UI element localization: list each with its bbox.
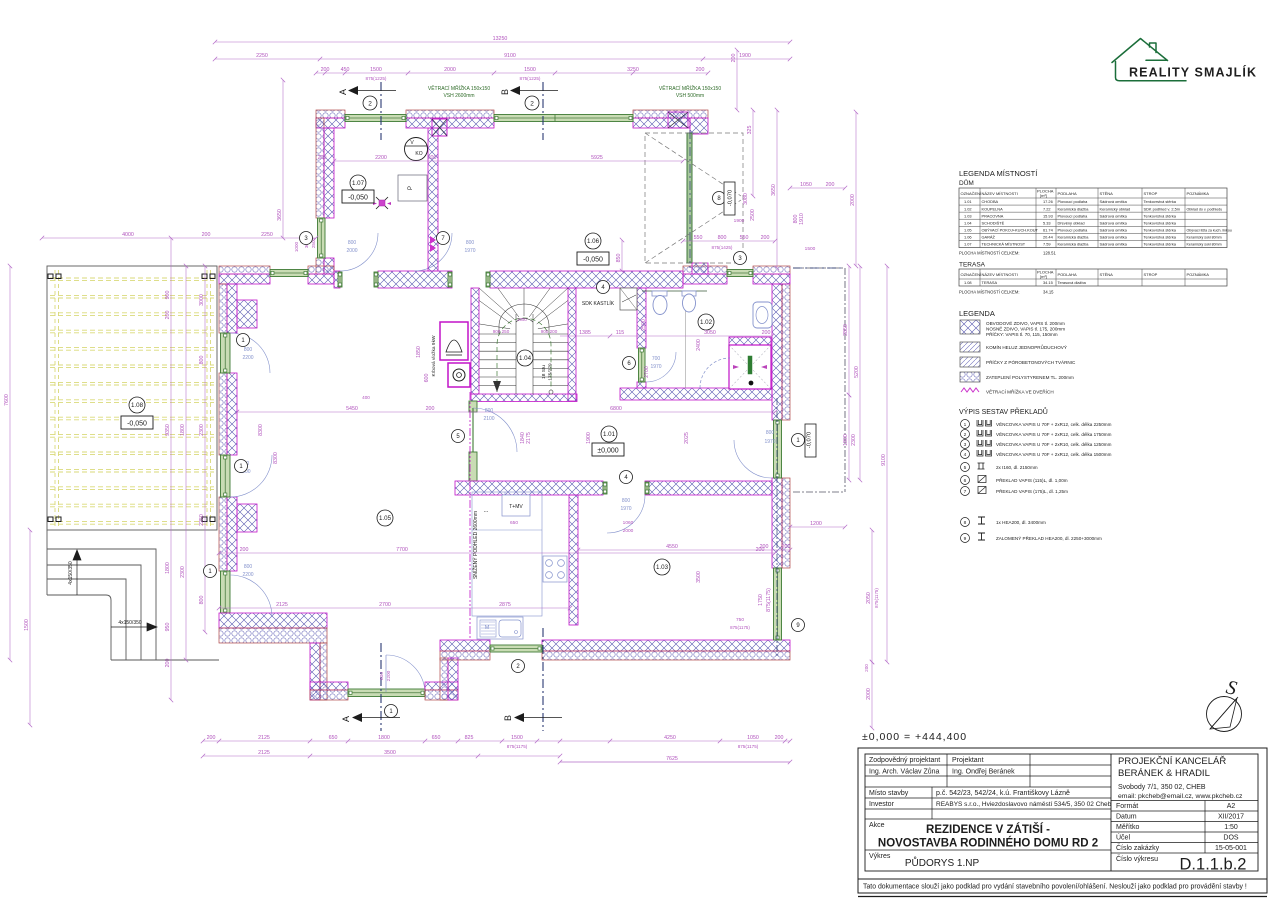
svg-text:2200: 2200 — [375, 155, 387, 161]
svg-text:2: 2 — [368, 100, 372, 107]
svg-text:PLOCHA MÍSTNOSTÍ CELKEM:: PLOCHA MÍSTNOSTÍ CELKEM: — [959, 290, 1020, 295]
svg-text:7625: 7625 — [666, 756, 678, 762]
svg-text:D.1.1.b.2: D.1.1.b.2 — [1180, 856, 1247, 874]
svg-text:7: 7 — [964, 489, 967, 495]
svg-text:Keramický obklad: Keramický obklad — [1100, 206, 1131, 211]
svg-text:2250: 2250 — [199, 514, 205, 526]
svg-text:2250: 2250 — [256, 53, 268, 59]
svg-text:TERASA: TERASA — [959, 262, 986, 269]
svg-text:3650: 3650 — [277, 209, 283, 221]
svg-text:9100: 9100 — [504, 53, 516, 59]
svg-text:3500: 3500 — [384, 750, 396, 756]
svg-text:1500: 1500 — [24, 619, 30, 631]
svg-text:3650: 3650 — [771, 184, 777, 196]
svg-text:200: 200 — [165, 311, 171, 320]
svg-text:1.07: 1.07 — [964, 242, 972, 247]
svg-text:9350: 9350 — [165, 424, 171, 436]
svg-text:200: 200 — [318, 155, 327, 161]
svg-text:20.44: 20.44 — [1043, 235, 1054, 240]
svg-text:Číslo zakázky: Číslo zakázky — [1116, 843, 1160, 852]
svg-text:REZIDENCE V ZÁTIŠÍ -: REZIDENCE V ZÁTIŠÍ - — [926, 823, 1050, 836]
svg-text:1970: 1970 — [464, 248, 475, 254]
svg-text:-0,050: -0,050 — [583, 257, 603, 264]
svg-text:Obklad do v. podhledu: Obklad do v. podhledu — [1187, 207, 1223, 211]
svg-text:800: 800 — [718, 235, 727, 241]
svg-text:200: 200 — [775, 735, 784, 741]
svg-text:200: 200 — [760, 544, 769, 550]
svg-text:4250: 4250 — [664, 735, 676, 741]
svg-text:2000: 2000 — [623, 528, 634, 534]
svg-text:875(1225): 875(1225) — [366, 76, 387, 81]
svg-text:2: 2 — [530, 100, 534, 107]
svg-text:1500: 1500 — [370, 67, 382, 73]
svg-text:1850: 1850 — [416, 346, 422, 358]
svg-text:1.05: 1.05 — [379, 515, 392, 522]
svg-text:-0,070: -0,070 — [807, 432, 813, 448]
svg-text:1800: 1800 — [165, 562, 171, 574]
svg-text:34.15: 34.15 — [1043, 290, 1054, 295]
svg-text:1970: 1970 — [620, 506, 631, 512]
svg-text:650: 650 — [432, 735, 441, 741]
svg-text:2400: 2400 — [696, 339, 702, 351]
svg-text:Keramická dlažba: Keramická dlažba — [1058, 206, 1090, 211]
svg-text:2x I160, dl. 2150mm: 2x I160, dl. 2150mm — [996, 465, 1038, 470]
svg-text:200: 200 — [202, 232, 211, 238]
svg-text:Plovoucí podlaha: Plovoucí podlaha — [1058, 199, 1089, 204]
svg-text:2700: 2700 — [379, 602, 391, 608]
svg-text:P: P — [408, 186, 414, 190]
svg-text:900 200: 900 200 — [541, 329, 558, 334]
svg-text:±0,000: ±0,000 — [597, 448, 618, 455]
svg-text:NÁZEV MÍSTNOSTI: NÁZEV MÍSTNOSTI — [982, 191, 1018, 196]
svg-text:ZALOMENÝ PŘEKLAD HEA200, dl: ZALOMENÝ PŘEKLAD HEA200, dl. 2250+3000mm — [996, 534, 1102, 541]
svg-text:800: 800 — [348, 240, 357, 246]
svg-text:Projektant: Projektant — [952, 757, 984, 764]
svg-text:A2: A2 — [1227, 803, 1236, 810]
svg-text:4550: 4550 — [666, 544, 678, 550]
svg-text:KOUPELNA: KOUPELNA — [982, 206, 1004, 211]
svg-text:STĚNA: STĚNA — [1100, 191, 1114, 196]
svg-text:Datum: Datum — [1116, 814, 1137, 821]
svg-text:34.15: 34.15 — [1043, 280, 1053, 285]
svg-text:1.08: 1.08 — [131, 402, 144, 409]
svg-text:OBÝVACÍ POKOJ+KUCH.KOUT: OBÝVACÍ POKOJ+KUCH.KOUT — [982, 227, 1039, 232]
svg-text:[m²]: [m²] — [1040, 193, 1047, 198]
svg-text:200: 200 — [762, 330, 771, 336]
svg-text:NÁZEV MÍSTNOSTI: NÁZEV MÍSTNOSTI — [982, 272, 1018, 277]
svg-text:2700: 2700 — [644, 366, 650, 378]
svg-text:2000: 2000 — [346, 248, 357, 254]
svg-text:SCHODIŠTĚ: SCHODIŠTĚ — [982, 220, 1005, 225]
svg-text:-0,050: -0,050 — [348, 195, 368, 202]
svg-text:900: 900 — [165, 291, 171, 300]
svg-text:1500: 1500 — [805, 246, 816, 252]
svg-text:VĚTRACÍ MŘÍŽKA 150x150: VĚTRACÍ MŘÍŽKA 150x150 — [659, 84, 721, 92]
svg-text:1900: 1900 — [734, 218, 745, 224]
svg-text:Sádrová omítka: Sádrová omítka — [1100, 227, 1128, 232]
svg-text:Plovoucí podlaha: Plovoucí podlaha — [1058, 227, 1089, 232]
svg-text:200: 200 — [761, 235, 770, 241]
svg-text:5.33: 5.33 — [1043, 220, 1051, 225]
svg-text:M: M — [485, 625, 490, 631]
svg-text:LEGENDA MÍSTNOSTÍ: LEGENDA MÍSTNOSTÍ — [959, 169, 1038, 178]
svg-text:VSH 500mm: VSH 500mm — [676, 93, 704, 99]
svg-text:1800: 1800 — [843, 434, 849, 446]
svg-text:VSH 2600mm: VSH 2600mm — [443, 93, 474, 99]
svg-text:18 Stu: 18 Stu — [541, 365, 547, 379]
svg-text:1050: 1050 — [517, 317, 527, 322]
svg-text:PŘEKLAD VAPIS (175)L, dl.: PŘEKLAD VAPIS (175)L, dl. 1,25m — [996, 487, 1068, 494]
svg-text:VĚNCOVKA VAPIS U 70F + 2x: VĚNCOVKA VAPIS U 70F + 2xR10, celk. délk… — [996, 440, 1112, 447]
svg-text:Ing. Ondřej Beránek: Ing. Ondřej Beránek — [952, 769, 1015, 776]
svg-text:Investor: Investor — [869, 801, 895, 808]
svg-text:VĚTRACÍ MŘÍŽKA 150x150: VĚTRACÍ MŘÍŽKA 150x150 — [428, 84, 490, 92]
svg-text:2500: 2500 — [641, 319, 647, 331]
svg-text:8300: 8300 — [273, 452, 279, 464]
svg-text:DOS: DOS — [1223, 835, 1239, 842]
svg-text:200: 200 — [428, 155, 437, 161]
svg-text:PŘÍČKY Z PÓROBETONOVÝCH TVÁ: PŘÍČKY Z PÓROBETONOVÝCH TVÁRNIC — [986, 358, 1076, 365]
svg-text:1.02: 1.02 — [700, 319, 713, 326]
svg-text:8: 8 — [964, 520, 967, 526]
svg-text:email: pkcheb@email.cz, www.pk: email: pkcheb@email.cz, www.pkcheb.cz — [1118, 793, 1243, 800]
svg-text:115: 115 — [616, 330, 624, 336]
svg-text:Tenkovrstvá stěrka: Tenkovrstvá stěrka — [1144, 227, 1177, 232]
svg-text:200: 200 — [240, 547, 249, 553]
svg-text:2875: 2875 — [499, 602, 511, 608]
svg-text:PRACOVNA: PRACOVNA — [982, 213, 1004, 218]
svg-text:1050: 1050 — [800, 182, 812, 188]
svg-text:2200: 2200 — [242, 572, 253, 578]
svg-text:800: 800 — [622, 498, 631, 504]
svg-text:1900: 1900 — [739, 53, 751, 59]
svg-text:875(1225): 875(1225) — [520, 76, 541, 81]
svg-text:1840: 1840 — [520, 432, 526, 444]
svg-text:1900: 1900 — [586, 432, 592, 444]
svg-text:850: 850 — [616, 254, 622, 263]
svg-text:2850: 2850 — [843, 324, 849, 336]
svg-text:875(1175): 875(1175) — [874, 588, 879, 608]
svg-text:POZNÁMKA: POZNÁMKA — [1187, 191, 1210, 196]
svg-text:1800: 1800 — [378, 735, 390, 741]
svg-text:800: 800 — [466, 240, 475, 246]
svg-text:TECHNICKÁ MÍSTNOST: TECHNICKÁ MÍSTNOST — [982, 242, 1026, 247]
svg-text:875(1175): 875(1175) — [507, 744, 528, 749]
svg-text:1.03: 1.03 — [964, 213, 972, 218]
svg-text:2000: 2000 — [866, 688, 872, 700]
svg-text:Keramický sokl 80mm: Keramický sokl 80mm — [1187, 236, 1222, 240]
svg-text:2025: 2025 — [684, 432, 690, 444]
svg-text:800: 800 — [766, 430, 775, 436]
svg-text:...: ... — [483, 508, 488, 514]
svg-text:825: 825 — [465, 735, 474, 741]
svg-text:VĚTRACÍ MŘÍŽKA VE DVEŘÍCH: VĚTRACÍ MŘÍŽKA VE DVEŘÍCH — [986, 388, 1054, 395]
svg-text:550: 550 — [740, 235, 749, 241]
svg-text:Keramická dlažba: Keramická dlažba — [1058, 235, 1090, 240]
svg-text:1060: 1060 — [623, 520, 634, 526]
svg-text:950: 950 — [165, 623, 171, 632]
svg-text:TERASA: TERASA — [982, 280, 998, 285]
svg-text:2250: 2250 — [261, 232, 273, 238]
svg-text:13250: 13250 — [493, 36, 508, 42]
svg-text:LEGENDA: LEGENDA — [959, 309, 995, 318]
svg-text:REALITY SMAJLÍK: REALITY SMAJLÍK — [1129, 65, 1257, 80]
svg-text:750: 750 — [736, 617, 744, 623]
svg-text:2000: 2000 — [444, 67, 456, 73]
svg-text:61.74: 61.74 — [1043, 227, 1054, 232]
svg-text:STROP: STROP — [1144, 191, 1158, 196]
svg-text:VĚNCOVKA VAPIS U 70F + 2x: VĚNCOVKA VAPIS U 70F + 2xR12, celk. délk… — [996, 430, 1112, 437]
svg-text:Místo stavby: Místo stavby — [869, 790, 909, 797]
svg-text:650: 650 — [329, 735, 338, 741]
svg-text:800: 800 — [244, 564, 253, 570]
svg-text:Tenkovrstvá stěrka: Tenkovrstvá stěrka — [1144, 242, 1177, 247]
svg-text:Výkres: Výkres — [869, 853, 891, 860]
svg-text:p.č. 542/23, 542/24, k.ú. Fran: p.č. 542/23, 542/24, k.ú. Františkovy Lá… — [936, 790, 1070, 797]
svg-text:1.07: 1.07 — [352, 180, 365, 187]
svg-text:15-05-001: 15-05-001 — [1215, 845, 1247, 852]
svg-text:800: 800 — [379, 672, 385, 680]
svg-text:CHODBA: CHODBA — [982, 199, 999, 204]
svg-text:Měřítko: Měřítko — [1116, 824, 1139, 831]
svg-text:800: 800 — [244, 347, 253, 353]
svg-text:2: 2 — [964, 432, 967, 438]
svg-text:PLOCHA MÍSTNOSTÍ CELKEM:: PLOCHA MÍSTNOSTÍ CELKEM: — [959, 251, 1020, 256]
svg-text:GARÁŽ: GARÁŽ — [982, 235, 996, 240]
svg-text:875(1175): 875(1175) — [738, 744, 759, 749]
svg-text:2200: 2200 — [386, 670, 392, 681]
svg-text:1050: 1050 — [747, 735, 759, 741]
svg-text:Sádrová omítka: Sádrová omítka — [1100, 242, 1128, 247]
svg-text:PŘÍČKY: VAPIS tl. 70, 115,: PŘÍČKY: VAPIS tl. 70, 115, 150mm — [986, 330, 1058, 337]
svg-text:1x HEA200, dl. 3400mm: 1x HEA200, dl. 3400mm — [996, 520, 1046, 525]
svg-text:5200: 5200 — [854, 366, 860, 378]
svg-text:7700: 7700 — [396, 547, 408, 553]
svg-text:1800: 1800 — [180, 424, 186, 436]
svg-text:200: 200 — [165, 659, 171, 668]
svg-text:2125: 2125 — [258, 735, 270, 741]
svg-text:175/279: 175/279 — [548, 363, 554, 381]
svg-text:A: A — [338, 89, 348, 95]
svg-text:3080: 3080 — [743, 193, 749, 205]
svg-text:VÝPIS SESTAV PŘEKLADŮ: VÝPIS SESTAV PŘEKLADŮ — [959, 407, 1048, 416]
svg-text:1000: 1000 — [294, 241, 299, 252]
svg-text:2500: 2500 — [750, 209, 756, 221]
svg-text:550: 550 — [694, 235, 703, 241]
svg-text:Tenkovrstvá stěrka: Tenkovrstvá stěrka — [1144, 235, 1177, 240]
svg-text:NOSNÉ ZDIVO, VAPIS tl. 175: NOSNÉ ZDIVO, VAPIS tl. 175, 200mm — [986, 326, 1065, 332]
svg-text:1385: 1385 — [579, 330, 591, 336]
svg-text:Sádrová omítka: Sádrová omítka — [1100, 213, 1128, 218]
svg-text:1.08: 1.08 — [964, 280, 972, 285]
svg-text:KOMÍN HELUZ JEDNOPRŮDUCHOVÝ: KOMÍN HELUZ JEDNOPRŮDUCHOVÝ — [986, 344, 1067, 350]
svg-text:4x150/350: 4x150/350 — [118, 620, 142, 626]
svg-text:S: S — [1224, 676, 1239, 700]
svg-text:325: 325 — [747, 126, 753, 135]
svg-text:POZNÁMKA: POZNÁMKA — [1187, 272, 1210, 277]
svg-text:XII/2017: XII/2017 — [1218, 814, 1244, 821]
svg-text:128.51: 128.51 — [1043, 251, 1056, 256]
svg-text:875(1425): 875(1425) — [712, 245, 733, 250]
svg-text:5: 5 — [964, 465, 967, 471]
svg-text:3500: 3500 — [696, 571, 702, 583]
svg-text:450: 450 — [341, 67, 350, 73]
svg-text:Obývací lišta za kuch. linkou: Obývací lišta za kuch. linkou — [1187, 228, 1232, 232]
svg-text:1.05: 1.05 — [964, 227, 972, 232]
svg-text:3050: 3050 — [704, 330, 716, 336]
svg-text:875(1175): 875(1175) — [766, 588, 772, 612]
svg-text:1750: 1750 — [758, 594, 764, 606]
svg-text:200: 200 — [782, 544, 791, 550]
svg-text:4: 4 — [964, 452, 967, 458]
svg-text:2050: 2050 — [866, 592, 872, 604]
svg-text:B: B — [500, 89, 510, 95]
svg-text:17.26: 17.26 — [1043, 199, 1053, 204]
svg-text:600: 600 — [424, 374, 430, 383]
svg-text:2000: 2000 — [850, 194, 856, 206]
svg-text:650: 650 — [510, 520, 518, 526]
svg-text:2100: 2100 — [483, 416, 494, 422]
svg-text:Ing. Arch. Václav Zůna: Ing. Arch. Václav Zůna — [869, 768, 940, 776]
svg-text:2200: 2200 — [242, 355, 253, 361]
svg-text:VĚNCOVKA VAPIS U 70F + 2x: VĚNCOVKA VAPIS U 70F + 2xR12, celk. délk… — [996, 420, 1112, 427]
svg-text:SDK podhled v. 2,5m: SDK podhled v. 2,5m — [1144, 206, 1180, 211]
svg-text:Zodpovědný projektant: Zodpovědný projektant — [869, 757, 940, 764]
svg-text:200: 200 — [696, 67, 705, 73]
svg-text:Sádrová omítka: Sádrová omítka — [1100, 199, 1128, 204]
svg-text:3: 3 — [964, 442, 967, 448]
svg-text:Akce: Akce — [869, 822, 885, 829]
svg-text:6800: 6800 — [610, 406, 622, 412]
svg-text:7.59: 7.59 — [1043, 242, 1051, 247]
svg-text:SDK KASTLÍK: SDK KASTLÍK — [582, 300, 615, 307]
svg-text:2300: 2300 — [851, 434, 857, 446]
svg-text:T+MV: T+MV — [509, 504, 523, 510]
svg-text:1500: 1500 — [511, 735, 523, 741]
svg-text:2300: 2300 — [180, 566, 186, 578]
svg-text:Keramický sokl 80mm: Keramický sokl 80mm — [1187, 243, 1222, 247]
svg-text:7600: 7600 — [4, 394, 10, 406]
svg-text:1.03: 1.03 — [656, 564, 669, 571]
svg-text:OZNAČENÍ: OZNAČENÍ — [961, 191, 983, 196]
svg-text:200: 200 — [321, 67, 330, 73]
svg-text:Krbová vložka 9kW: Krbová vložka 9kW — [431, 335, 437, 377]
svg-text:3000: 3000 — [199, 294, 205, 306]
svg-text:[m²]: [m²] — [1040, 274, 1047, 279]
svg-text:800: 800 — [199, 356, 205, 365]
svg-text:4000: 4000 — [122, 232, 134, 238]
svg-text:200: 200 — [731, 54, 737, 63]
svg-text:Terasová dlažba: Terasová dlažba — [1058, 280, 1087, 285]
svg-text:Keramická dlažba: Keramická dlažba — [1058, 242, 1090, 247]
svg-text:ZATEPLENÍ POLYSTYRENEM TL.: ZATEPLENÍ POLYSTYRENEM TL. 200mm — [986, 374, 1074, 380]
svg-text:PŮDORYS 1.NP: PŮDORYS 1.NP — [905, 856, 980, 869]
svg-text:SNÍŽENÝ PODHLED 2600mm: SNÍŽENÝ PODHLED 2600mm — [471, 511, 479, 579]
svg-text:1970: 1970 — [764, 439, 775, 445]
svg-text:REABYS s.r.o., Hviezdoslavovo: REABYS s.r.o., Hviezdoslavovo náměstí 53… — [936, 801, 1112, 808]
svg-text:700: 700 — [652, 356, 661, 362]
svg-text:1.06: 1.06 — [587, 238, 600, 245]
svg-text:PŘEKLAD VAPIS (115)L, dl.: PŘEKLAD VAPIS (115)L, dl. 1,00m — [996, 476, 1068, 483]
svg-text:15.93: 15.93 — [1043, 213, 1053, 218]
svg-text:1200: 1200 — [810, 521, 822, 527]
svg-text:STĚNA: STĚNA — [1100, 272, 1114, 277]
svg-text:200: 200 — [207, 735, 216, 741]
svg-text:1970: 1970 — [650, 364, 661, 370]
svg-text:1:50: 1:50 — [1224, 824, 1238, 831]
svg-text:875(1175): 875(1175) — [730, 625, 750, 630]
svg-text:7.22: 7.22 — [1043, 206, 1051, 211]
svg-text:9100: 9100 — [881, 454, 887, 466]
svg-text:OBVODOVÉ ZDIVO, VAPIS tl.: OBVODOVÉ ZDIVO, VAPIS tl. 200mm — [986, 320, 1065, 326]
svg-text:PODLAHA: PODLAHA — [1058, 191, 1077, 196]
svg-text:±0,000 = +444,400: ±0,000 = +444,400 — [862, 731, 967, 743]
svg-text:1.01: 1.01 — [603, 431, 616, 438]
svg-text:200: 200 — [864, 664, 869, 672]
svg-text:200: 200 — [826, 182, 835, 188]
svg-text:Tenkovrstvá stěrka: Tenkovrstvá stěrka — [1144, 199, 1177, 204]
svg-text:1.01: 1.01 — [964, 199, 972, 204]
svg-text:1.06: 1.06 — [964, 235, 972, 240]
svg-text:Sádrová omítka: Sádrová omítka — [1100, 220, 1128, 225]
svg-text:Formát: Formát — [1116, 803, 1138, 810]
svg-text:B: B — [503, 715, 513, 721]
svg-text:1.02: 1.02 — [964, 206, 972, 211]
svg-text:9: 9 — [964, 536, 967, 542]
svg-text:BERÁNEK & HRADIL: BERÁNEK & HRADIL — [1118, 768, 1210, 779]
svg-text:5450: 5450 — [346, 406, 358, 412]
svg-text:800: 800 — [485, 408, 494, 414]
svg-text:Svobody 7/1, 350 02, CHEB: Svobody 7/1, 350 02, CHEB — [1118, 784, 1206, 791]
svg-text:PROJEKČNÍ KANCELÁŘ: PROJEKČNÍ KANCELÁŘ — [1118, 756, 1226, 767]
svg-text:-0,070: -0,070 — [728, 190, 734, 206]
svg-text:200: 200 — [426, 406, 435, 412]
svg-text:Tenkovrstvá stěrka: Tenkovrstvá stěrka — [1144, 220, 1177, 225]
svg-text:6: 6 — [964, 478, 967, 484]
svg-text:Tenkovrstvá stěrka: Tenkovrstvá stěrka — [1144, 213, 1177, 218]
svg-text:A: A — [341, 716, 351, 722]
svg-text:2300: 2300 — [199, 424, 205, 436]
svg-text:5925: 5925 — [591, 155, 603, 161]
svg-text:2175: 2175 — [526, 432, 532, 444]
svg-text:Sádrová omítka: Sádrová omítka — [1100, 235, 1128, 240]
svg-text:NOVOSTAVBA RODINNÉHO DOMU RD 2: NOVOSTAVBA RODINNÉHO DOMU RD 2 — [878, 837, 1098, 850]
svg-text:Dřevěný obklad: Dřevěný obklad — [1058, 220, 1085, 225]
svg-text:900 250: 900 250 — [493, 329, 510, 334]
svg-text:VĚNCOVKA VAPIS U 70F + 2x: VĚNCOVKA VAPIS U 70F + 2xR12, celk. délk… — [996, 450, 1112, 457]
svg-text:PODLAHA: PODLAHA — [1058, 272, 1077, 277]
svg-text:3250: 3250 — [627, 67, 639, 73]
svg-text:KO: KO — [415, 151, 422, 157]
svg-text:STROP: STROP — [1144, 272, 1158, 277]
svg-text:Číslo výkresu: Číslo výkresu — [1116, 854, 1158, 863]
svg-text:2125: 2125 — [276, 602, 288, 608]
svg-text:1.04: 1.04 — [519, 355, 532, 362]
svg-text:8300: 8300 — [258, 424, 264, 436]
svg-text:400: 400 — [362, 395, 370, 400]
svg-text:Tato dokumentace slouží jako p: Tato dokumentace slouží jako podklad pro… — [863, 884, 1247, 891]
svg-text:1910: 1910 — [799, 213, 805, 225]
svg-text:DŮM: DŮM — [959, 178, 974, 187]
svg-text:800: 800 — [199, 596, 205, 605]
svg-text:1: 1 — [964, 422, 967, 428]
svg-text:Účel: Účel — [1116, 833, 1130, 842]
svg-text:1500: 1500 — [524, 67, 536, 73]
svg-text:1.04: 1.04 — [964, 220, 972, 225]
svg-text:2125: 2125 — [258, 750, 270, 756]
svg-text:-0,050: -0,050 — [127, 421, 147, 428]
svg-text:4x150/350: 4x150/350 — [68, 561, 74, 585]
